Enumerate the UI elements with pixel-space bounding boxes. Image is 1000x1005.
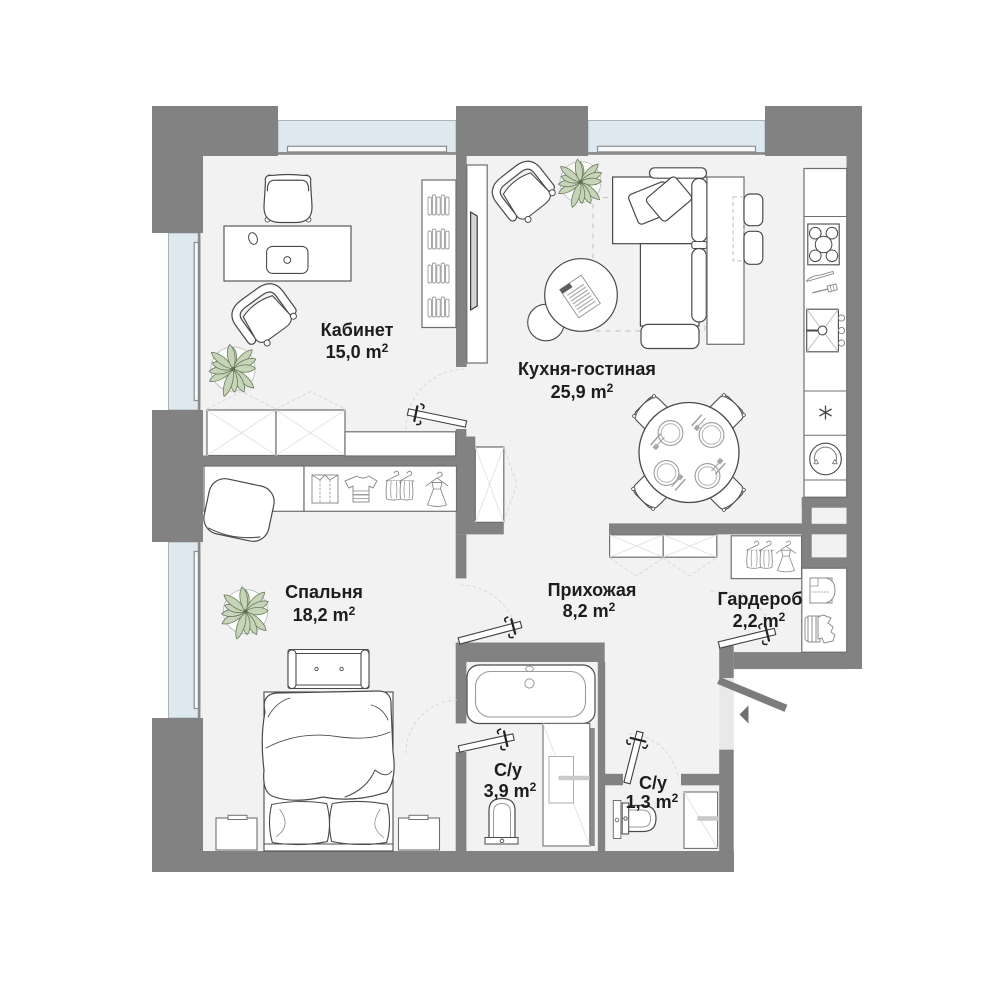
svg-text:18,2 m2: 18,2 m2 (293, 604, 356, 625)
svg-text:8,2 m2: 8,2 m2 (563, 600, 616, 621)
svg-text:С/у: С/у (639, 773, 667, 793)
svg-text:2,2 m2: 2,2 m2 (733, 610, 786, 631)
svg-text:25,9 m2: 25,9 m2 (551, 381, 614, 402)
svg-text:15,0 m2: 15,0 m2 (326, 341, 389, 362)
svg-text:Кухня-гостиная: Кухня-гостиная (518, 359, 656, 379)
svg-text:Спальня: Спальня (285, 582, 363, 602)
svg-text:3,9 m2: 3,9 m2 (484, 780, 537, 801)
svg-text:С/у: С/у (494, 760, 522, 780)
svg-text:Прихожая: Прихожая (548, 580, 637, 600)
svg-text:Кабинет: Кабинет (321, 320, 394, 340)
svg-text:Гардероб: Гардероб (717, 589, 802, 609)
svg-text:1,3 m2: 1,3 m2 (626, 791, 679, 812)
